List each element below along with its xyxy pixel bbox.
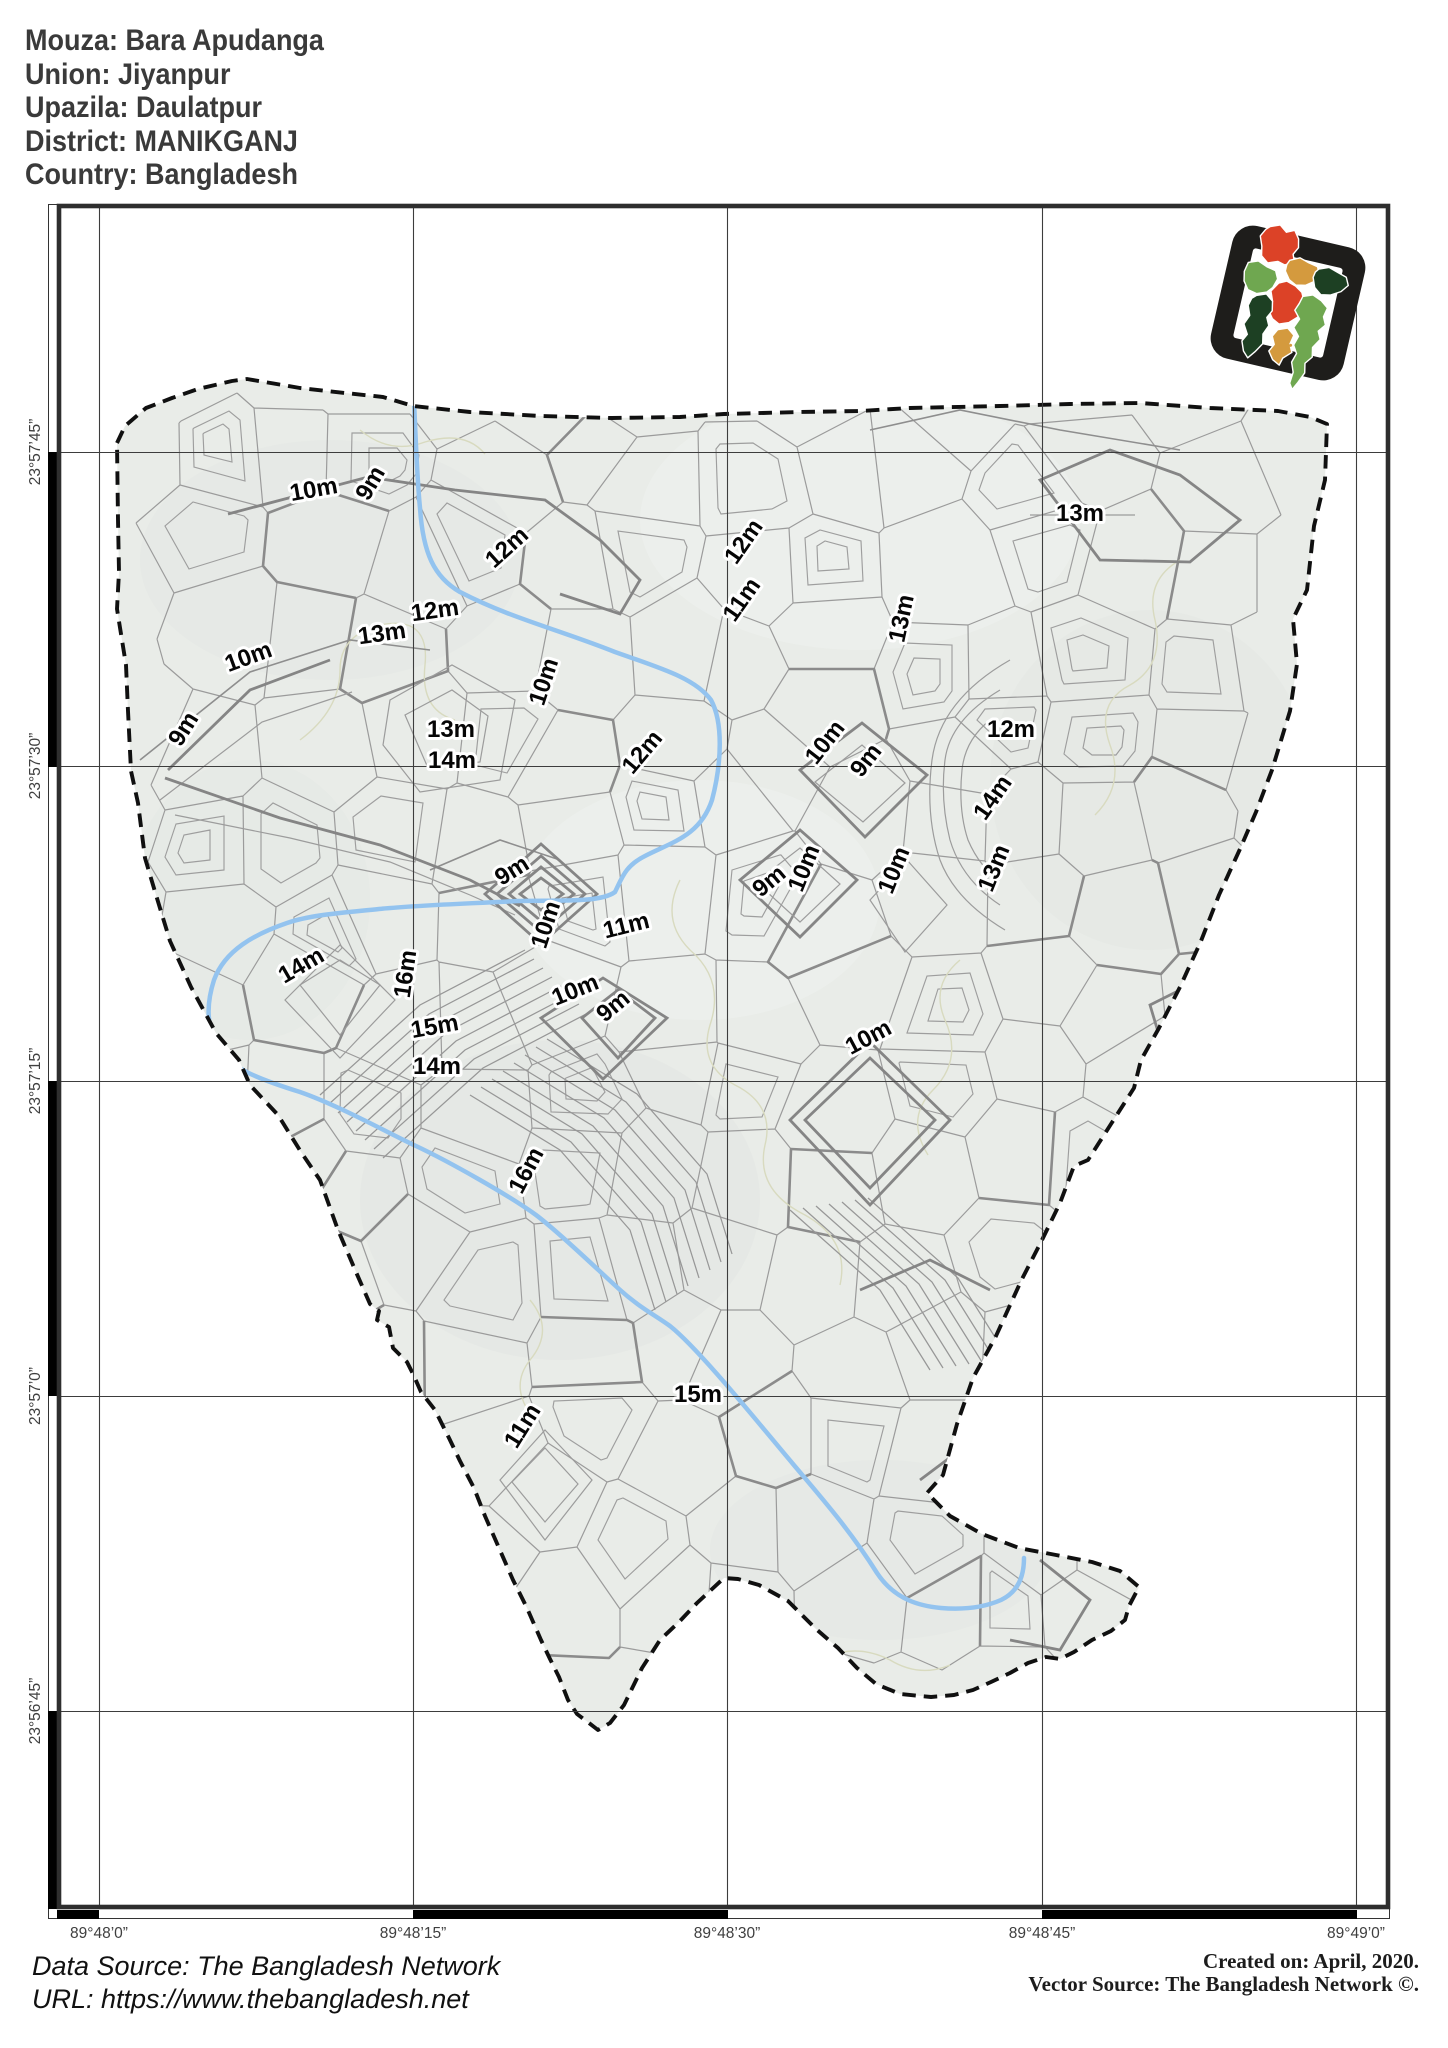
svg-text:14m: 14m bbox=[428, 747, 476, 774]
svg-text:89°48’45”: 89°48’45” bbox=[1009, 1925, 1076, 1942]
svg-text:89°48’0”: 89°48’0” bbox=[70, 1925, 128, 1942]
svg-text:14m: 14m bbox=[413, 1053, 461, 1080]
svg-text:12m: 12m bbox=[987, 716, 1035, 743]
svg-text:23°57’45”: 23°57’45” bbox=[27, 419, 44, 486]
svg-text:23°57’30”: 23°57’30” bbox=[27, 733, 44, 800]
svg-text:23°56’45”: 23°56’45” bbox=[27, 1678, 44, 1745]
svg-text:89°49’0”: 89°49’0” bbox=[1327, 1925, 1385, 1942]
svg-text:89°48’15”: 89°48’15” bbox=[380, 1925, 447, 1942]
svg-text:23°57’0”: 23°57’0” bbox=[27, 1367, 44, 1425]
svg-text:13m: 13m bbox=[427, 716, 475, 743]
svg-text:89°48’30”: 89°48’30” bbox=[694, 1925, 761, 1942]
svg-text:23°57’15”: 23°57’15” bbox=[27, 1048, 44, 1115]
svg-text:13m: 13m bbox=[1056, 500, 1104, 527]
svg-text:15m: 15m bbox=[674, 1381, 722, 1408]
